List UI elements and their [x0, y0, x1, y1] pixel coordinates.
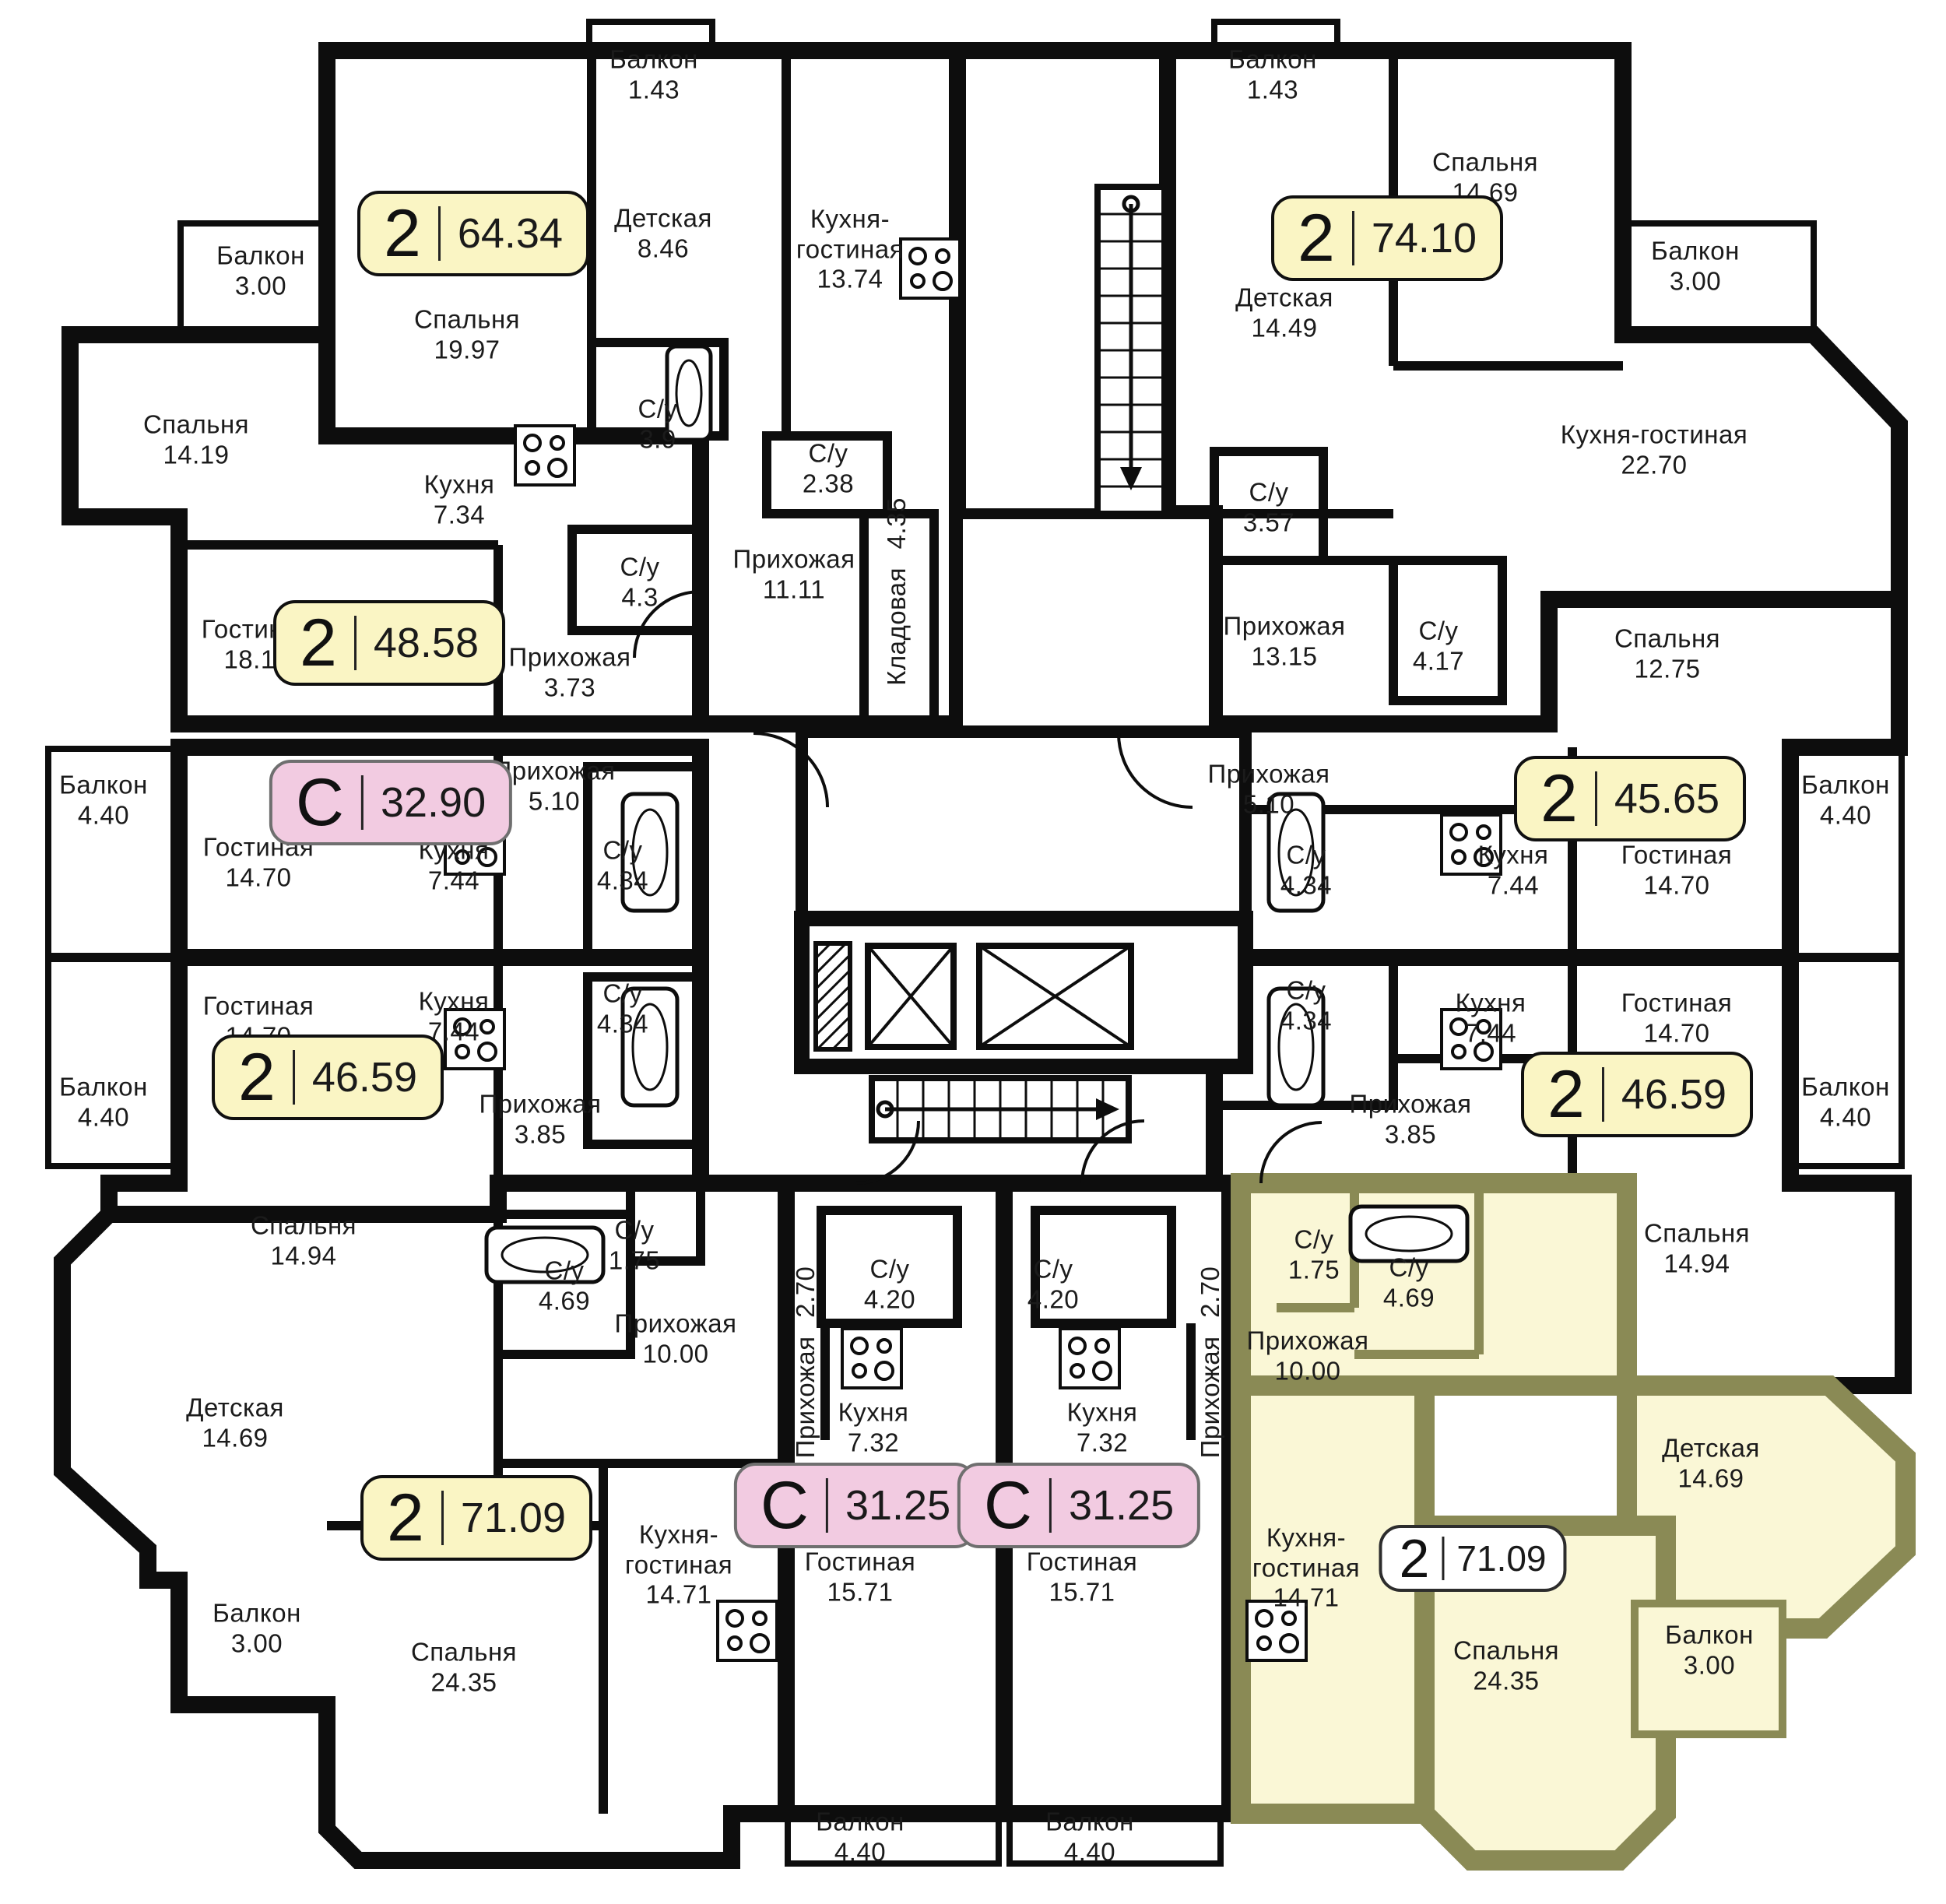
room-area: 12.75	[1614, 654, 1720, 683]
room-name: Спальня	[1614, 624, 1720, 653]
room-name: Кухня	[1067, 1398, 1138, 1427]
room-area: 7.32	[838, 1428, 909, 1457]
room-name: Балкон	[1665, 1621, 1754, 1649]
room-label: Балкон 3.00	[216, 211, 305, 330]
badge-divider-icon	[438, 206, 441, 261]
room-area: 14.70	[1621, 870, 1733, 900]
badge-divider-icon	[361, 775, 364, 830]
room-area: 4.69	[539, 1286, 590, 1316]
room-area: 14.71	[1252, 1583, 1360, 1612]
room-area: 3.9	[638, 424, 678, 454]
room-label: Прихожая 10.00	[615, 1279, 737, 1398]
room-label: Спальня 12.75	[1614, 594, 1720, 713]
room-area: 24.35	[411, 1667, 517, 1697]
room-label: Спальня 14.19	[143, 380, 249, 499]
apartment-badge[interactable]: С 32.90	[269, 760, 512, 845]
room-area: 4.17	[1413, 646, 1464, 676]
room-label: Спальня 24.35	[1453, 1606, 1559, 1725]
room-area: 4.20	[1027, 1284, 1079, 1314]
room-name: Кухня	[424, 470, 495, 499]
room-label: Кухня- гостиная 14.71	[625, 1490, 732, 1639]
room-area: 1.43	[1228, 75, 1317, 104]
room-name: Гостиная	[1621, 841, 1733, 869]
room-name: Гостиная	[203, 992, 314, 1021]
badge-rooms-count: 2	[300, 609, 337, 676]
room-label: Спальня 14.94	[1644, 1189, 1750, 1308]
room-name: Детская	[1662, 1434, 1760, 1463]
room-label: Балкон 3.00	[213, 1569, 301, 1688]
apartment-badge[interactable]: 2 45.65	[1514, 756, 1746, 841]
room-area: 4.69	[1383, 1283, 1435, 1312]
room-label: Кухня-гостиная 22.70	[1561, 390, 1748, 509]
room-label: Детская 14.69	[1662, 1403, 1760, 1523]
room-name: С/у	[602, 979, 642, 1008]
room-label: С/у 2.38	[803, 409, 854, 528]
room-name: С/у	[808, 439, 848, 468]
room-area: 3.00	[216, 271, 305, 300]
room-name: Прихожая	[1208, 760, 1330, 789]
room-name: Балкон	[59, 1073, 148, 1101]
room-area: 7.44	[419, 866, 490, 895]
room-name: Кухня-гостиная	[1561, 420, 1748, 449]
room-name: С/у	[1286, 841, 1326, 869]
room-name: Балкон	[1045, 1807, 1134, 1836]
badge-area: 32.90	[381, 782, 486, 824]
apartment-badge[interactable]: С 31.25	[957, 1463, 1200, 1548]
room-label: С/у 3.57	[1243, 448, 1294, 567]
room-name: Кухня- гостиная	[1252, 1523, 1360, 1582]
room-area: 10.00	[615, 1339, 737, 1368]
room-area: 14.94	[251, 1241, 357, 1270]
room-label: Балкон 4.40	[59, 1042, 148, 1161]
stairs-icon	[1098, 187, 1164, 514]
badge-divider-icon	[826, 1478, 828, 1533]
room-name: Детская	[1235, 283, 1333, 312]
room-label: С/у 4.69	[539, 1226, 590, 1345]
room-label: С/у 4.34	[597, 949, 648, 1068]
room-label: С/у 4.34	[1280, 946, 1332, 1065]
room-area: 15.71	[1027, 1577, 1138, 1607]
room-area: 14.69	[186, 1423, 284, 1453]
room-label: Балкон 4.40	[1801, 740, 1890, 859]
room-area: 14.70	[203, 862, 314, 892]
room-area: 3.57	[1243, 508, 1294, 537]
badge-area: 46.59	[1621, 1073, 1726, 1115]
room-area: 24.35	[1453, 1666, 1559, 1695]
room-name: Кухня- гостиная	[625, 1520, 732, 1579]
room-name: Спальня	[1453, 1636, 1559, 1665]
room-name: Балкон	[816, 1807, 905, 1836]
room-label: Прихожая 13.15	[1224, 581, 1346, 701]
room-label: С/у 4.34	[1280, 810, 1332, 929]
room-name: С/у	[869, 1255, 909, 1284]
room-label: Балкон 4.40	[1045, 1777, 1134, 1896]
badge-rooms-count: 2	[1298, 205, 1335, 272]
room-name: Балкон	[213, 1599, 301, 1628]
room-area: 7.44	[1456, 1018, 1526, 1048]
room-area: 3.00	[1665, 1650, 1754, 1680]
room-name: Прихожая	[791, 1336, 820, 1458]
room-name: Гостиная	[1621, 989, 1733, 1017]
room-name: С/у	[614, 1216, 654, 1245]
badge-rooms-count: С	[760, 1472, 809, 1539]
apartment-badge[interactable]: 2 64.34	[357, 191, 589, 276]
room-name: Кухня	[1478, 841, 1549, 869]
room-area: 14.70	[1621, 1018, 1733, 1048]
apartment-badge[interactable]: С 31.25	[734, 1463, 977, 1548]
badge-divider-icon	[1595, 771, 1597, 826]
apartment-badge[interactable]: 2 46.59	[212, 1035, 444, 1120]
room-label: С/у 4.69	[1383, 1223, 1435, 1342]
room-label: Балкон 1.43	[1228, 15, 1317, 134]
room-name: Детская	[186, 1393, 284, 1422]
room-label: Кухня- гостиная 14.71	[1252, 1493, 1360, 1642]
room-name: Прихожая	[1196, 1336, 1224, 1458]
badge-rooms-count: 2	[387, 1484, 424, 1551]
room-name: Спальня	[1432, 148, 1538, 177]
room-area: 11.11	[733, 574, 855, 604]
room-label: Прихожая 2.70	[1196, 1266, 1225, 1459]
room-name: Кладовая	[882, 567, 911, 686]
room-name: С/у	[1418, 617, 1458, 645]
room-name: Спальня	[1644, 1219, 1750, 1248]
room-label: Балкон 4.40	[816, 1777, 905, 1896]
room-label: Детская 14.69	[186, 1363, 284, 1482]
room-name: Кухня	[419, 987, 490, 1016]
room-area: 4.40	[59, 800, 148, 830]
room-label: С/у 4.17	[1413, 586, 1464, 705]
badge-area: 71.09	[1456, 1540, 1546, 1576]
room-label: С/у 4.20	[1027, 1224, 1079, 1344]
room-area: 2.70	[791, 1266, 820, 1318]
room-label: Балкон 4.40	[59, 740, 148, 859]
room-label: Спальня 14.94	[251, 1181, 357, 1300]
room-label: Прихожая 10.00	[1247, 1296, 1369, 1415]
room-area: 13.15	[1224, 641, 1346, 671]
room-area: 10.00	[1247, 1356, 1369, 1386]
room-area: 7.32	[1067, 1428, 1138, 1457]
badge-rooms-count: С	[296, 769, 344, 836]
badge-divider-icon	[1602, 1067, 1604, 1122]
room-area: 4.40	[1801, 1102, 1890, 1132]
room-name: С/у	[1249, 478, 1288, 507]
room-area: 4.40	[816, 1837, 905, 1867]
room-label: Спальня 24.35	[411, 1607, 517, 1727]
room-area: 1.75	[1288, 1255, 1340, 1284]
room-label: Балкон 3.00	[1651, 206, 1740, 325]
apartment-badge[interactable]: 2 48.58	[273, 600, 505, 686]
room-name: Прихожая	[615, 1309, 737, 1338]
room-area: 7.34	[424, 500, 495, 529]
room-area: 1.75	[609, 1245, 660, 1275]
apartment-badge[interactable]: 2 71.09	[1379, 1525, 1566, 1592]
room-name: Спальня	[411, 1638, 517, 1667]
room-area: 14.71	[625, 1579, 732, 1609]
room-area: 4.34	[597, 1009, 648, 1038]
badge-rooms-count: 2	[384, 200, 421, 267]
room-area: 2.70	[1196, 1266, 1224, 1318]
room-name: Балкон	[1801, 1073, 1890, 1101]
room-area: 4.35	[882, 497, 911, 549]
room-area: 19.97	[414, 335, 520, 364]
badge-area: 74.10	[1372, 217, 1477, 259]
badge-divider-icon	[1352, 211, 1354, 265]
badge-area: 48.58	[374, 622, 479, 664]
room-name: Балкон	[609, 45, 698, 74]
room-area: 4.34	[1280, 1006, 1332, 1035]
room-label: С/у 4.20	[864, 1224, 915, 1344]
badge-area: 31.25	[1069, 1484, 1174, 1526]
room-label: Детская 8.46	[614, 174, 712, 293]
room-name: Балкон	[1651, 237, 1740, 265]
room-label: Прихожая 3.85	[1350, 1059, 1472, 1179]
room-area: 1.43	[609, 75, 698, 104]
room-name: Прихожая	[1350, 1090, 1472, 1119]
room-name: С/у	[1286, 976, 1326, 1005]
badge-area: 46.59	[312, 1056, 417, 1098]
room-name: Кухня- гостиная	[796, 205, 904, 263]
room-label: Прихожая 3.85	[479, 1059, 602, 1179]
room-name: С/у	[1033, 1255, 1073, 1284]
room-label: Спальня 19.97	[414, 275, 520, 394]
badge-divider-icon	[1442, 1537, 1444, 1580]
room-name: Спальня	[414, 305, 520, 334]
badge-area: 45.65	[1614, 778, 1719, 820]
room-name: С/у	[544, 1256, 584, 1285]
room-name: Спальня	[251, 1211, 357, 1240]
room-name: Балкон	[216, 241, 305, 270]
room-area: 8.46	[614, 234, 712, 263]
room-area: 4.40	[1045, 1837, 1134, 1867]
room-area: 3.73	[509, 673, 631, 702]
room-name: С/у	[1294, 1225, 1333, 1254]
room-name: Прихожая	[733, 545, 855, 574]
room-label: Балкон 4.40	[1801, 1042, 1890, 1161]
room-name: Прихожая	[1224, 612, 1346, 641]
badge-rooms-count: 2	[1399, 1531, 1429, 1586]
room-area: 4.3	[620, 582, 660, 612]
badge-rooms-count: 2	[1547, 1061, 1585, 1128]
badge-divider-icon	[354, 616, 357, 670]
room-name: Прихожая	[1247, 1326, 1369, 1355]
badge-divider-icon	[441, 1491, 444, 1545]
stairs-icon	[872, 1078, 1129, 1140]
room-area: 4.34	[1280, 870, 1332, 900]
room-area: 14.49	[1235, 313, 1333, 343]
room-label: Балкон 1.43	[609, 15, 698, 134]
room-area: 4.40	[1801, 800, 1890, 830]
apartment-badge[interactable]: 2 46.59	[1521, 1052, 1753, 1137]
room-name: Прихожая	[479, 1090, 602, 1119]
room-area: 4.40	[59, 1102, 148, 1132]
room-label: Кладовая 4.35	[882, 497, 912, 686]
room-area: 3.85	[1350, 1119, 1472, 1149]
room-area: 13.74	[796, 264, 904, 293]
room-name: С/у	[638, 395, 678, 423]
room-area: 22.70	[1561, 450, 1748, 480]
room-name: Балкон	[1228, 45, 1317, 74]
room-name: Кухня	[1456, 989, 1526, 1017]
room-name: Кухня	[838, 1398, 909, 1427]
room-name: Балкон	[1801, 771, 1890, 799]
badge-rooms-count: С	[984, 1472, 1032, 1539]
room-label: Прихожая 2.70	[791, 1266, 820, 1459]
badge-area: 71.09	[461, 1497, 566, 1539]
badge-divider-icon	[293, 1050, 295, 1105]
room-area: 2.38	[803, 469, 854, 498]
room-name: Гостиная	[805, 1547, 916, 1576]
room-label: Балкон 3.00	[1665, 1590, 1754, 1709]
room-area: 14.94	[1644, 1249, 1750, 1278]
room-label: Прихожая 3.73	[509, 613, 631, 732]
room-name: Балкон	[59, 771, 148, 799]
room-label: Прихожая 11.11	[733, 515, 855, 634]
badge-divider-icon	[1049, 1478, 1052, 1533]
room-area: 3.85	[479, 1119, 602, 1149]
badge-area: 31.25	[845, 1484, 950, 1526]
room-area: 4.20	[864, 1284, 915, 1314]
room-area: 3.00	[1651, 266, 1740, 296]
room-name: Спальня	[143, 410, 249, 439]
badge-rooms-count: 2	[238, 1044, 276, 1111]
room-area: 3.00	[213, 1628, 301, 1658]
room-area: 15.71	[805, 1577, 916, 1607]
badge-rooms-count: 2	[1540, 765, 1578, 832]
room-name: Гостиная	[1027, 1547, 1138, 1576]
room-label: С/у 3.9	[638, 364, 678, 483]
room-label: Кухня 7.34	[424, 440, 495, 559]
room-area: 7.44	[1478, 870, 1549, 900]
room-label: Кухня- гостиная 13.74	[796, 174, 904, 323]
room-area: 14.19	[143, 440, 249, 469]
apartment-badge[interactable]: 2 71.09	[360, 1475, 592, 1561]
room-area: 14.69	[1662, 1463, 1760, 1493]
floor-plan: Балкон 3.00 Спальня 14.19 Спальня 19.97 …	[0, 0, 1946, 1904]
room-name: Прихожая	[509, 643, 631, 672]
badge-area: 64.34	[458, 213, 563, 255]
apartment-badge[interactable]: 2 74.10	[1271, 195, 1503, 281]
room-name: Детская	[614, 204, 712, 233]
room-name: С/у	[620, 553, 660, 581]
room-area: 4.34	[597, 866, 648, 895]
room-name: С/у	[1389, 1253, 1428, 1282]
